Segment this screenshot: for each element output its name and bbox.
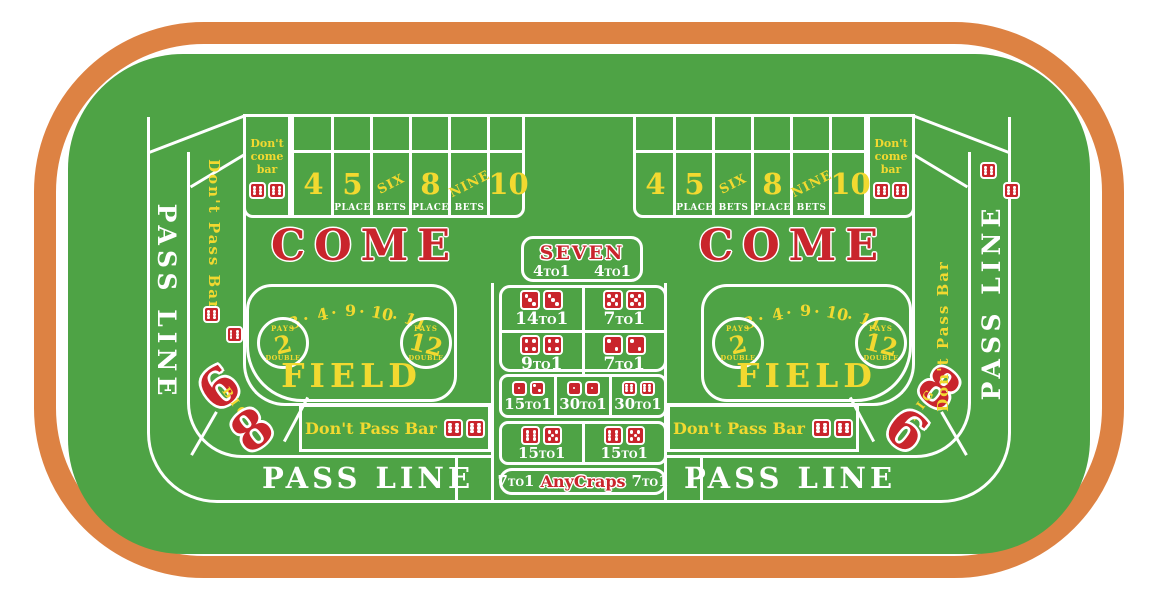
- dont-come-label: Don't: [874, 137, 907, 150]
- pass-line-bottom-left[interactable]: PASS LINE: [258, 461, 478, 495]
- seven-odds-left: 4TO1: [533, 264, 570, 279]
- field-title: FIELD: [704, 356, 909, 395]
- eleven-bet-left[interactable]: 15TO1: [502, 424, 585, 463]
- eleven-bet-right[interactable]: 15TO1: [585, 424, 665, 463]
- place-bet-nine[interactable]: NINEBETS: [450, 153, 489, 215]
- die-icon: [521, 426, 540, 445]
- place-bet-5[interactable]: 5PLACE: [675, 153, 714, 215]
- place-bet-10[interactable]: 10: [831, 153, 870, 215]
- place-bet-nine[interactable]: NINEBETS: [792, 153, 831, 215]
- craps-numbers-grid: 15TO1 30TO1 30TO1: [499, 374, 667, 418]
- come-area-left[interactable]: COME: [215, 224, 515, 268]
- hardway-6-bet[interactable]: 14TO1: [502, 288, 585, 330]
- die-icon: [530, 381, 545, 396]
- die-icon: [249, 182, 266, 199]
- pass-line-bottom-right[interactable]: PASS LINE: [680, 461, 900, 495]
- die-icon: [585, 381, 600, 396]
- die-icon: [543, 426, 562, 445]
- die-icon: [203, 306, 220, 323]
- any-seven-bet[interactable]: SEVEN 4TO1 4TO1: [521, 236, 643, 282]
- dont-pass-bar-right[interactable]: Don't Pass Bar: [667, 404, 859, 452]
- bottom-boundary-line: [491, 500, 667, 503]
- dont-pass-bar-left[interactable]: Don't Pass Bar: [299, 404, 491, 452]
- dont-come-label: bar: [257, 163, 278, 176]
- die-icon: [980, 162, 997, 179]
- field-area-left[interactable]: 3 · 4 · 9 · 10 · 11 PAYS 2 DOUBLE PAYS 1…: [246, 284, 457, 402]
- place-bet-5[interactable]: 5PLACE: [333, 153, 372, 215]
- come-area-right[interactable]: COME: [643, 224, 943, 268]
- die-icon: [543, 290, 563, 310]
- place-bet-8[interactable]: 8PLACE: [753, 153, 792, 215]
- die-icon: [268, 182, 285, 199]
- die-icon: [444, 419, 463, 438]
- hardway-4-bet[interactable]: 7TO1: [585, 333, 665, 375]
- die-icon: [520, 335, 540, 355]
- die-icon: [1003, 182, 1020, 199]
- place-bet-8[interactable]: 8PLACE: [411, 153, 450, 215]
- die-icon: [567, 381, 582, 396]
- field-area-right[interactable]: 3 · 4 · 9 · 10 · 11 PAYS 2 DOUBLE PAYS 1…: [701, 284, 912, 402]
- die-icon: [812, 419, 831, 438]
- dont-come-label: Don't: [250, 137, 283, 150]
- field-title: FIELD: [249, 356, 454, 395]
- hardways-grid: 14TO1 7TO1 9TO1 7TO1: [499, 285, 667, 372]
- die-icon: [603, 290, 623, 310]
- place-bet-4[interactable]: 4: [636, 153, 675, 215]
- die-icon: [873, 182, 890, 199]
- any-craps-title: AnyCraps: [540, 472, 625, 491]
- die-icon: [626, 290, 646, 310]
- place-bets-row-right: 4 5PLACE SIXBETS 8PLACE NINEBETS 10: [633, 114, 867, 218]
- hardway-8-bet[interactable]: 9TO1: [502, 333, 585, 375]
- die-icon: [520, 290, 540, 310]
- die-icon: [226, 326, 243, 343]
- die-icon: [622, 381, 637, 396]
- dont-pass-bar-label: Don't Pass Bar: [673, 419, 805, 438]
- die-icon: [466, 419, 485, 438]
- any-craps-bet[interactable]: 7TO1 AnyCraps 7TO1: [499, 468, 667, 495]
- dont-come-label: bar: [881, 163, 902, 176]
- eleven-grid: 15TO1 15TO1: [499, 421, 667, 465]
- dont-come-bar-left[interactable]: Don't come bar: [243, 114, 291, 218]
- place-bet-10[interactable]: 10: [489, 153, 528, 215]
- two-aces-bet[interactable]: 30TO1: [557, 377, 612, 415]
- dont-pass-bar-vertical-right[interactable]: Don't Pass Bar: [931, 231, 955, 441]
- place-bets-row-left: 4 5PLACE SIXBETS 8PLACE NINEBETS 10: [291, 114, 525, 218]
- dont-come-label: come: [875, 150, 908, 163]
- die-icon: [626, 426, 645, 445]
- place-bet-4[interactable]: 4: [294, 153, 333, 215]
- die-icon: [604, 426, 623, 445]
- dont-pass-bar-label: Don't Pass Bar: [305, 419, 437, 438]
- die-icon: [543, 335, 563, 355]
- die-icon: [892, 182, 909, 199]
- die-icon: [603, 335, 623, 355]
- craps-table: Don't come bar Don't come bar 4 5PLACE S…: [0, 0, 1158, 600]
- die-icon: [626, 335, 646, 355]
- die-icon: [834, 419, 853, 438]
- dont-come-label: come: [251, 150, 284, 163]
- two-sixes-bet[interactable]: 30TO1: [612, 377, 664, 415]
- die-icon: [640, 381, 655, 396]
- die-icon: [512, 381, 527, 396]
- hardway-10-bet[interactable]: 7TO1: [585, 288, 665, 330]
- center-divider-line-left: [491, 283, 494, 501]
- place-bet-six[interactable]: SIXBETS: [372, 153, 411, 215]
- dont-come-bar-right[interactable]: Don't come bar: [867, 114, 915, 218]
- place-bet-six[interactable]: SIXBETS: [714, 153, 753, 215]
- seven-odds-right: 4TO1: [594, 264, 631, 279]
- ace-deuce-bet[interactable]: 15TO1: [502, 377, 557, 415]
- pass-line-vertical-left[interactable]: PASS LINE: [149, 152, 185, 452]
- seven-title: SEVEN: [533, 242, 631, 264]
